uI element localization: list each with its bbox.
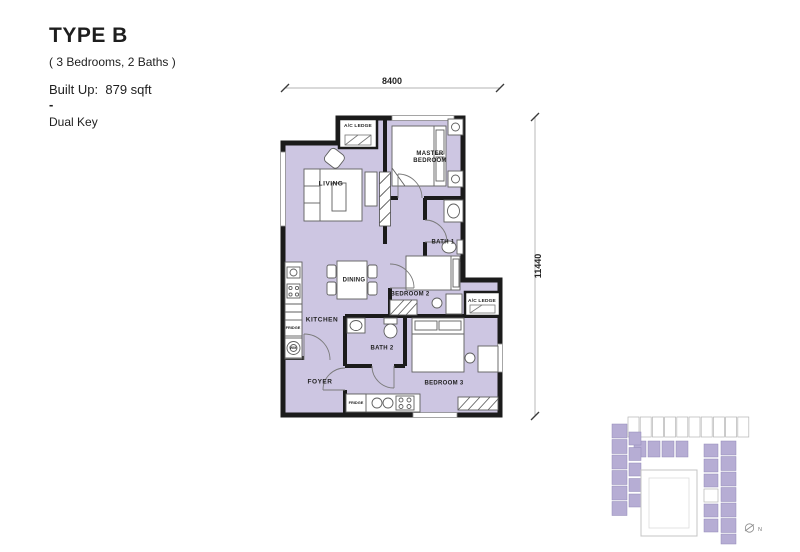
room-label-master-bedroom: MASTER BEDROOM: [407, 151, 453, 165]
brochure-page: TYPE B ( 3 Bedrooms, 2 Baths ) Built Up:…: [0, 0, 800, 552]
furniture-kitchen: [285, 262, 302, 359]
key-plan-tower-outline: [641, 470, 697, 536]
room-label-dining: DINING: [343, 278, 366, 285]
room-label-bedroom-3: BEDROOM 3: [424, 381, 463, 388]
room-label-kitchen: KITCHEN: [306, 316, 338, 323]
room-label-bath-2: BATH 2: [370, 346, 393, 353]
feature-wall-hatch: [380, 172, 391, 226]
plan-type-title: TYPE B: [49, 24, 176, 48]
bedroom-3-wardrobe: [458, 397, 498, 410]
separator-dash: -: [49, 101, 176, 109]
key-plan-core-units: [704, 489, 718, 502]
bedroom-2-wardrobe: [390, 300, 417, 315]
north-label: N: [758, 527, 762, 533]
room-label-bath-1: BATH 1: [431, 240, 454, 247]
appliance-label-fridge-kitchen: FRIDGE: [286, 326, 301, 330]
built-up-area: Built Up: 879 sqft: [49, 82, 176, 97]
north-arrow-icon: [745, 524, 754, 532]
key-plan-top-wing: [628, 417, 749, 437]
room-label-living: LIVING: [319, 180, 344, 187]
bedroom-bath-subtitle: ( 3 Bedrooms, 2 Baths ): [49, 55, 176, 69]
room-label-bedroom-2: BEDROOM 2: [390, 292, 429, 299]
room-label-foyer: FOYER: [308, 378, 333, 385]
key-plan: N: [600, 410, 775, 545]
room-label-ac-ledge-right: A/C LEDGE: [468, 299, 496, 305]
appliance-label-fridge-suite: FRIDGE: [349, 401, 364, 405]
title-block: TYPE B ( 3 Bedrooms, 2 Baths ) Built Up:…: [49, 24, 176, 129]
dim-height-label: 11440: [533, 254, 543, 279]
floor-plan-drawing: 8400 11440: [270, 70, 570, 430]
room-label-ac-ledge-top: A/C LEDGE: [344, 124, 372, 130]
dim-width-label: 8400: [382, 76, 402, 86]
dual-key-label: Dual Key: [49, 115, 176, 129]
unit-outline: [283, 118, 500, 415]
appliance-label-washing-machine: WM: [290, 346, 297, 350]
